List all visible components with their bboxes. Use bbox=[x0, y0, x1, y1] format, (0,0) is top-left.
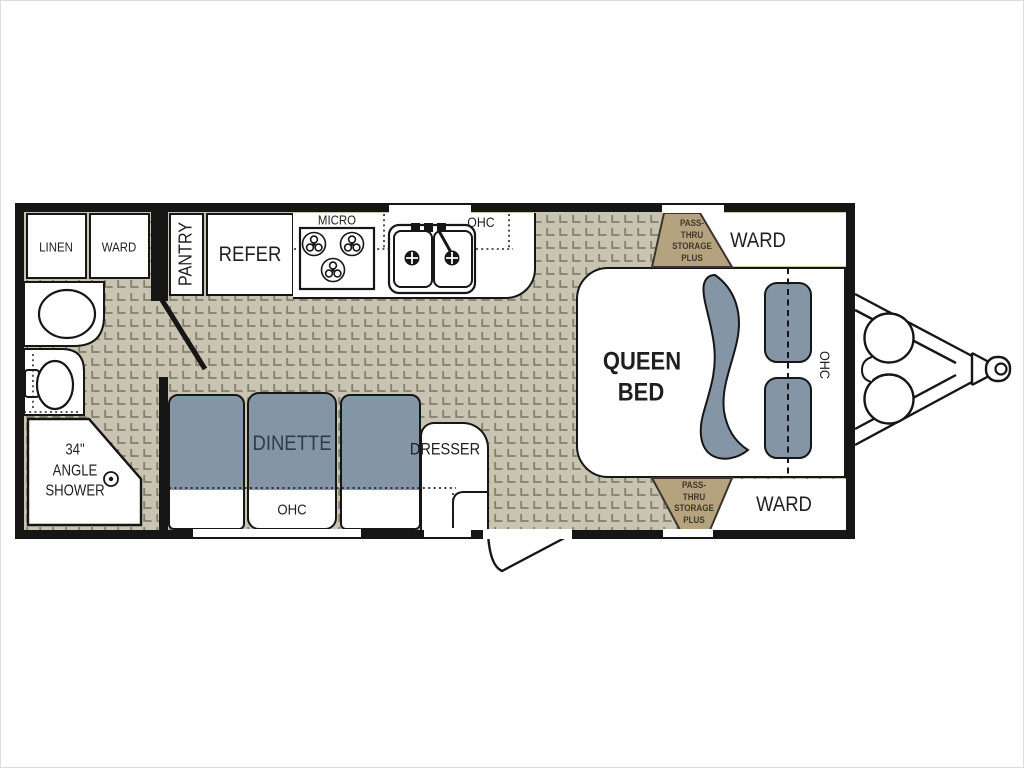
window bbox=[662, 203, 724, 213]
window bbox=[663, 529, 713, 539]
ward-rear-top-label: WARD bbox=[730, 229, 786, 253]
floorplan-page: LINEN WARD PANTRY REFER MICRO OHC PASS- … bbox=[0, 0, 1024, 768]
window bbox=[424, 529, 471, 539]
dresser bbox=[420, 422, 489, 530]
bed-pillow bbox=[764, 377, 812, 459]
propane-tank bbox=[865, 314, 914, 363]
linen-label: LINEN bbox=[39, 240, 73, 255]
trailer-hitch bbox=[855, 294, 1010, 445]
pantry-label: PANTRY bbox=[176, 222, 197, 286]
queen-bed-label-line1: QUEEN bbox=[603, 348, 681, 377]
dresser-label: DRESSER bbox=[410, 441, 480, 460]
bed-pillow bbox=[764, 282, 812, 363]
ward-rear-bottom-label: WARD bbox=[756, 493, 812, 517]
dinette-bench-left bbox=[168, 394, 245, 530]
entry-door-opening bbox=[483, 529, 572, 539]
bathroom-wall-top bbox=[151, 203, 168, 301]
dinette-bench-right bbox=[340, 394, 421, 530]
queen-bed-label-line2: BED bbox=[618, 379, 664, 408]
propane-tank bbox=[865, 375, 914, 424]
dinette-label: DINETTE bbox=[252, 432, 331, 456]
dinette-ohc-label: OHC bbox=[277, 502, 306, 519]
bathroom-wall-bottom bbox=[159, 377, 168, 530]
window bbox=[389, 203, 471, 213]
micro-label: MICRO bbox=[318, 213, 356, 228]
bed-ohc-label: OHC bbox=[817, 351, 833, 379]
ward-front-label: WARD bbox=[102, 240, 137, 255]
kitchen-ohc-label: OHC bbox=[467, 214, 494, 230]
refer-label: REFER bbox=[219, 243, 282, 267]
pass-thru-storage-bottom-label: PASS- THRU STORAGE PLUS bbox=[654, 480, 734, 526]
pass-thru-storage-top-label: PASS- THRU STORAGE PLUS bbox=[652, 218, 732, 264]
shower-label: 34" ANGLE SHOWER bbox=[20, 440, 130, 502]
window bbox=[193, 529, 361, 539]
